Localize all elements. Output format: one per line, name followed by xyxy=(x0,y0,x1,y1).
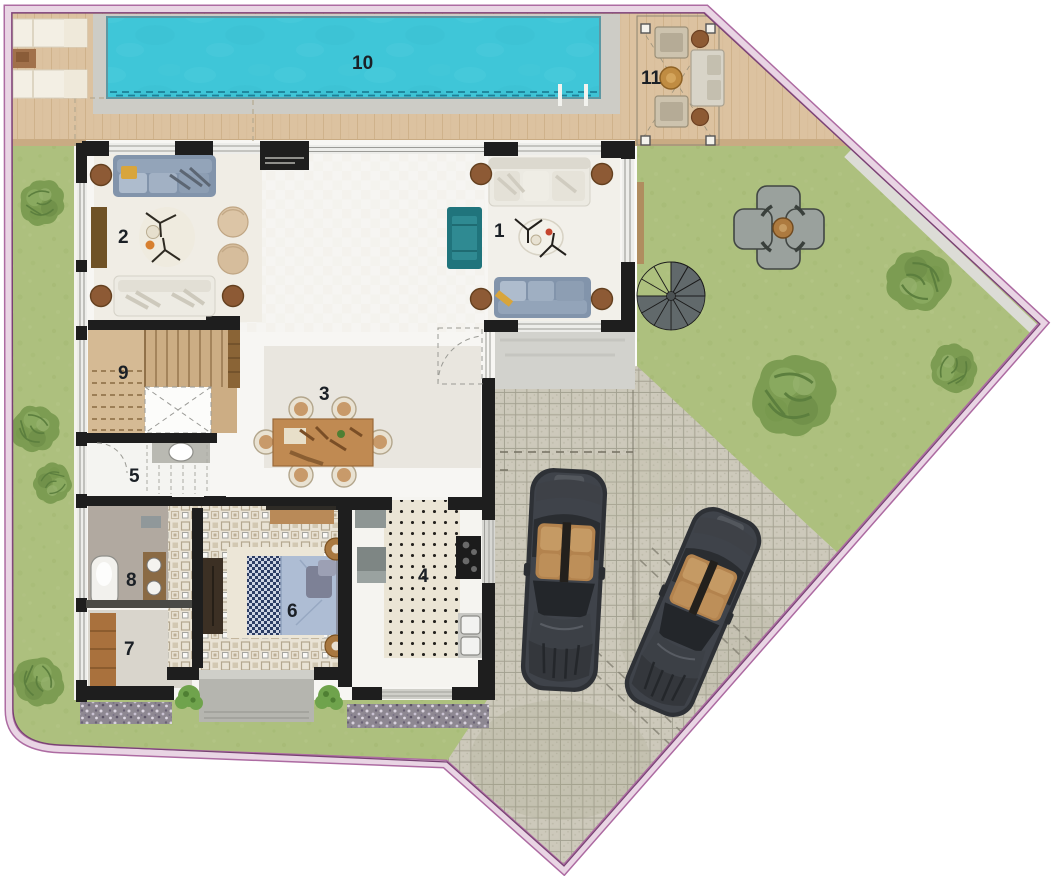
svg-text:1: 1 xyxy=(494,221,505,242)
svg-text:9: 9 xyxy=(118,363,129,384)
svg-text:3: 3 xyxy=(319,384,330,405)
svg-text:6: 6 xyxy=(287,601,298,622)
svg-text:5: 5 xyxy=(129,466,140,487)
svg-text:7: 7 xyxy=(124,639,135,660)
svg-text:10: 10 xyxy=(352,53,373,74)
svg-text:2: 2 xyxy=(118,227,129,248)
svg-text:8: 8 xyxy=(126,570,137,591)
svg-text:4: 4 xyxy=(418,566,429,587)
svg-text:11: 11 xyxy=(641,68,662,89)
